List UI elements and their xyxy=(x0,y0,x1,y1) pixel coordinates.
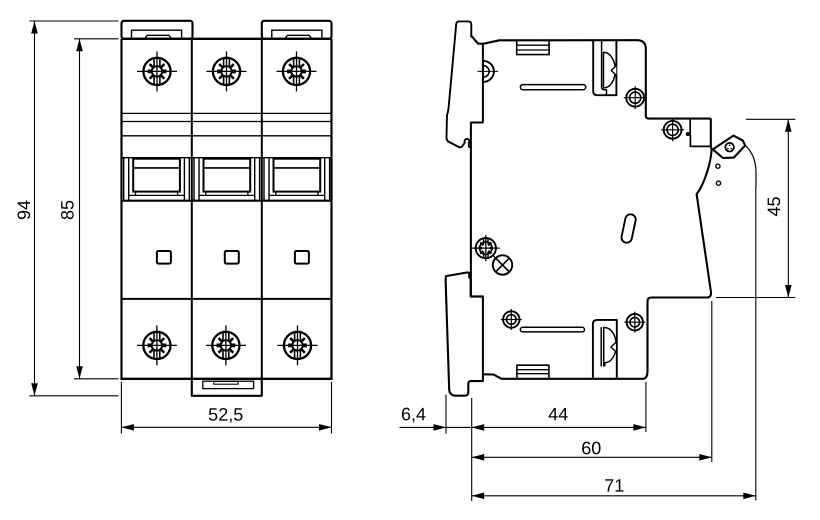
svg-text:45: 45 xyxy=(764,196,784,216)
svg-text:71: 71 xyxy=(604,476,624,496)
svg-text:60: 60 xyxy=(581,438,601,458)
svg-text:52,5: 52,5 xyxy=(208,405,243,425)
svg-text:94: 94 xyxy=(14,200,34,220)
svg-text:85: 85 xyxy=(58,200,78,220)
svg-text:6,4: 6,4 xyxy=(401,404,426,424)
svg-text:44: 44 xyxy=(548,404,568,424)
